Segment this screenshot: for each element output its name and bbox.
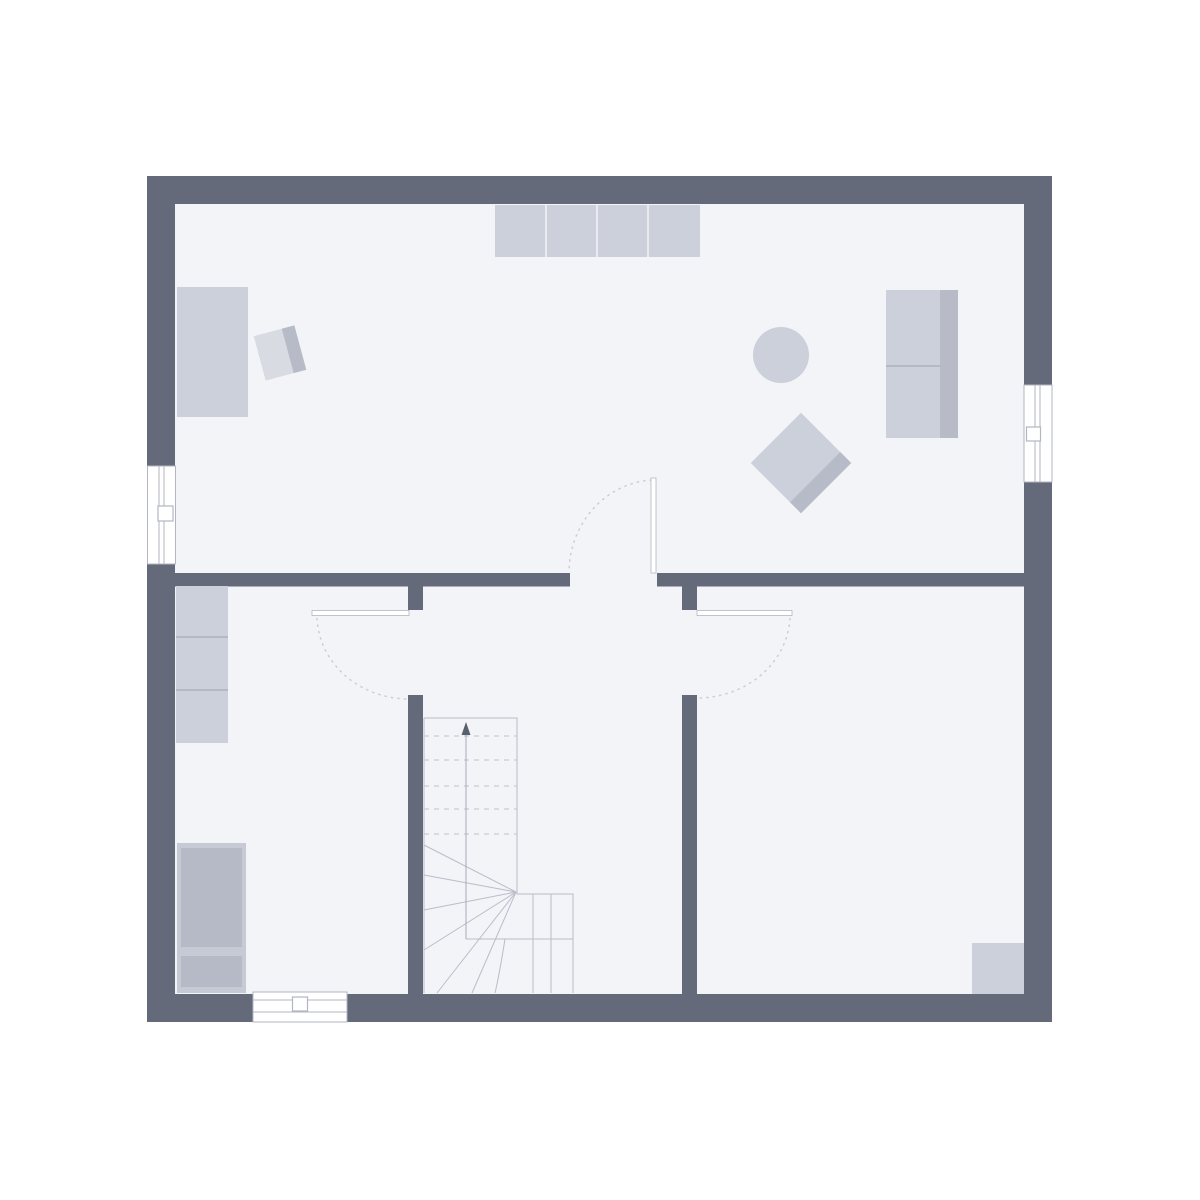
- kitchen-counter: [495, 205, 700, 257]
- wall-cabinet: [176, 586, 228, 743]
- door-leaf: [697, 611, 792, 616]
- window-right: [1024, 385, 1052, 482]
- wardrobe-back-band: [940, 290, 958, 438]
- wardrobe: [886, 290, 958, 438]
- window-left: [148, 466, 176, 564]
- corner-fixture: [972, 943, 1024, 994]
- window-handle-icon: [293, 997, 308, 1011]
- appliance-top: [181, 848, 242, 947]
- bed: [177, 287, 248, 417]
- round-table: [753, 327, 809, 383]
- appliance-unit: [177, 843, 246, 993]
- window-bottom: [253, 992, 347, 1022]
- wall-horizontal-left: [175, 573, 570, 587]
- wall-vertical-right: [682, 695, 697, 994]
- wall-horizontal-right: [657, 573, 1024, 587]
- appliance-bottom: [181, 956, 242, 987]
- window-handle-icon: [1027, 427, 1041, 441]
- floor-plan-page: [0, 0, 1200, 1200]
- floor-plan-svg: [0, 0, 1200, 1200]
- door-leaf: [312, 611, 409, 616]
- cabinet-body: [176, 586, 228, 743]
- wall-stub-left: [408, 586, 423, 610]
- window-handle-icon: [158, 506, 173, 521]
- wall-vertical-left: [408, 695, 423, 994]
- wall-stub-right: [682, 586, 697, 610]
- door-leaf: [651, 478, 656, 573]
